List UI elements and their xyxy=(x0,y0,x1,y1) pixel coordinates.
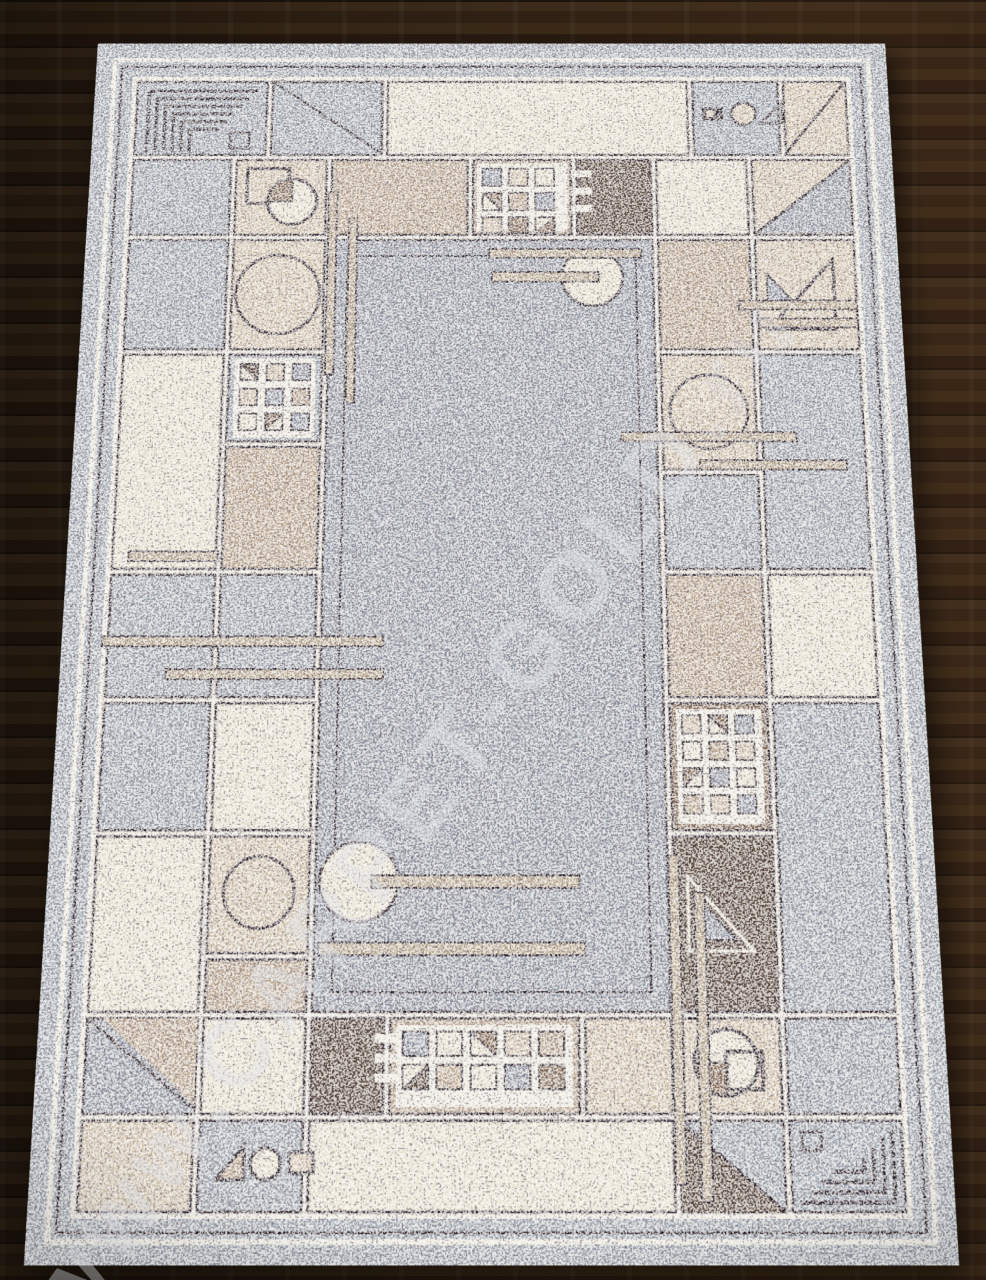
speckle-overlay xyxy=(24,44,959,1266)
rug xyxy=(24,44,959,1266)
photo-scene: www.CARPET-GOLD.ru xyxy=(0,0,986,1280)
rug-graphic xyxy=(24,44,959,1266)
